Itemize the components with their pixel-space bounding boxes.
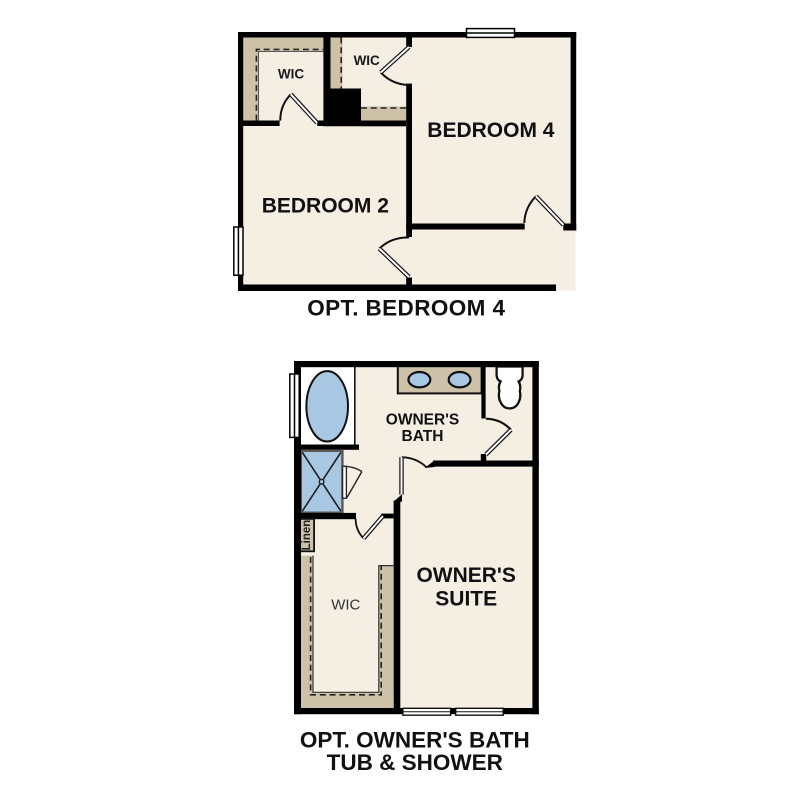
svg-text:BATH: BATH [402,428,444,445]
svg-text:OWNER'S: OWNER'S [416,564,516,587]
svg-text:OPT. BEDROOM 4: OPT. BEDROOM 4 [307,296,505,321]
svg-text:WIC: WIC [278,67,304,82]
svg-text:Linen: Linen [301,520,313,551]
svg-text:WIC: WIC [354,53,380,68]
svg-text:BEDROOM 4: BEDROOM 4 [427,119,555,142]
svg-text:BEDROOM 2: BEDROOM 2 [262,195,389,218]
svg-text:WIC: WIC [331,596,360,613]
svg-text:TUB & SHOWER: TUB & SHOWER [327,750,503,775]
svg-text:OWNER'S: OWNER'S [386,412,459,429]
svg-text:OPT. OWNER'S BATH: OPT. OWNER'S BATH [300,727,530,752]
svg-text:SUITE: SUITE [435,588,497,611]
